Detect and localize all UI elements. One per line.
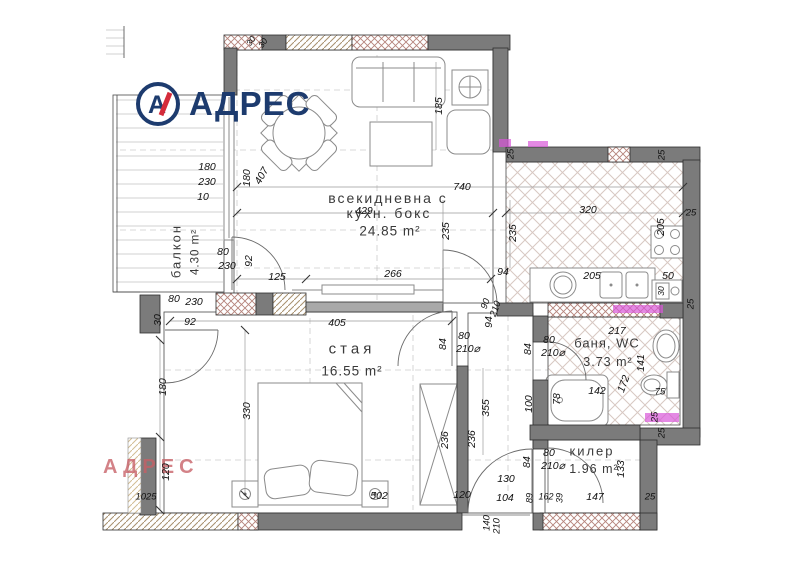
dimension-label: 92 (184, 317, 196, 328)
armchair (447, 110, 490, 154)
dimension-label: 236 (440, 431, 451, 449)
room-label: баня, WC (574, 337, 639, 350)
dimension-label: 502 (370, 491, 388, 502)
dimension-label: 266 (384, 269, 402, 280)
dimension-label: 217 (608, 326, 626, 337)
dimension-label: 180 (158, 378, 169, 396)
dimension-label: 330 (242, 402, 253, 420)
dimension-label: 205 (656, 218, 667, 236)
balcony-door-bedroom (165, 330, 218, 383)
dimension-label: 80 (543, 448, 555, 459)
room-label: стая (329, 342, 376, 357)
dimension-label: 230 (198, 177, 216, 188)
dimension-label: 80 (217, 247, 229, 258)
brand-logo: А АДРЕС (136, 82, 310, 126)
dimension-label: 230 (185, 297, 203, 308)
dimension-label: 25 (506, 149, 516, 160)
dimension-label: 120 (161, 463, 172, 481)
dimension-label: 25 (686, 299, 696, 310)
hall-door (443, 250, 497, 304)
dimension-label: 84 (438, 338, 449, 350)
room-label: 4.30 m² (190, 229, 202, 275)
floor-lamp (452, 70, 488, 105)
dimension-label: 92 (244, 255, 255, 267)
dimension-label: 94 (497, 267, 509, 278)
dimension-label: 94 (484, 316, 495, 328)
floorplan-drawing (0, 0, 800, 566)
dimension-label: 25 (657, 150, 667, 161)
dimension-label: 80 (458, 331, 470, 342)
dimension-label: 75 (655, 387, 666, 397)
highlight-mark (613, 305, 663, 313)
dimension-label: 50 (662, 271, 674, 282)
dimension-label: 100 (524, 395, 535, 413)
dimension-label: 405 (328, 318, 346, 329)
dimension-label: 84 (522, 456, 533, 468)
sofa (352, 57, 445, 107)
dimension-label: 235 (508, 224, 519, 242)
room-label: килер (570, 445, 615, 458)
bed (258, 383, 362, 505)
dimension-label: 180 (198, 162, 216, 173)
dimension-label: 185 (434, 97, 445, 115)
dimension-label: 39 (556, 493, 565, 503)
dimension-label: 133 (616, 460, 627, 478)
dimension-label: 147 (586, 492, 604, 503)
dimension-label: 125 (268, 272, 286, 283)
dimension-label: 142 (588, 386, 606, 397)
dimension-label: 205 (583, 271, 601, 282)
dimension-label: 210⌀ (541, 461, 565, 472)
room-label: балкон (170, 224, 183, 278)
dimension-label: 80 (168, 294, 180, 305)
dimension-label: 180 (242, 169, 253, 187)
dimension-label: 120 (453, 490, 471, 501)
dimension-label: 25 (657, 428, 667, 439)
coffee-table (370, 122, 432, 166)
highlight-mark (528, 141, 548, 147)
dimension-label: 30 (657, 286, 666, 295)
dimension-label: 89 (526, 493, 535, 503)
dimension-label: 210⌀ (541, 348, 565, 359)
dimension-label: 230 (218, 261, 236, 272)
room-label: 1.96 m² (569, 463, 618, 476)
dimension-label: 104 (496, 493, 514, 504)
dimension-label: 740 (453, 182, 471, 193)
highlight-mark (499, 139, 511, 147)
dimension-label: 25 (645, 492, 656, 502)
sink (653, 330, 679, 362)
dimension-label: 429 (355, 206, 373, 217)
room-label: 24.85 m² (359, 224, 420, 238)
dimension-label: 320 (579, 205, 597, 216)
dimension-label: 236 (467, 430, 478, 448)
dimension-label: 210⌀ (456, 344, 480, 355)
watermark: АДРЕС (103, 456, 199, 479)
room-label: всекидневна с (328, 191, 448, 205)
brand-logo-icon: А (136, 82, 180, 126)
room-label: 3.73 m² (583, 356, 632, 369)
dimension-label: 355 (481, 399, 492, 417)
floorplan-canvas: А АДРЕС АДРЕС всекидневна скухн. бокс24.… (0, 0, 800, 566)
dimension-label: 10 (197, 192, 209, 203)
dimension-label: 84 (523, 343, 534, 355)
dimension-label: 130 (497, 474, 515, 485)
brand-name: АДРЕС (189, 85, 310, 123)
dimension-label: 30 (153, 314, 164, 326)
dimension-label: 141 (636, 354, 647, 372)
dimension-label: 162 (538, 493, 553, 502)
room-label: 16.55 m² (321, 364, 382, 378)
stairs-icon (106, 26, 124, 58)
dimension-label: 235 (441, 222, 452, 240)
dimension-label: 78 (552, 393, 563, 405)
dimension-label: 80 (543, 335, 555, 346)
dimension-label: 25 (650, 412, 660, 423)
tv-console (292, 285, 443, 294)
dimension-label: 1025 (135, 492, 156, 502)
dimension-label: 25 (686, 208, 697, 218)
dimension-label: 210 (492, 518, 502, 534)
